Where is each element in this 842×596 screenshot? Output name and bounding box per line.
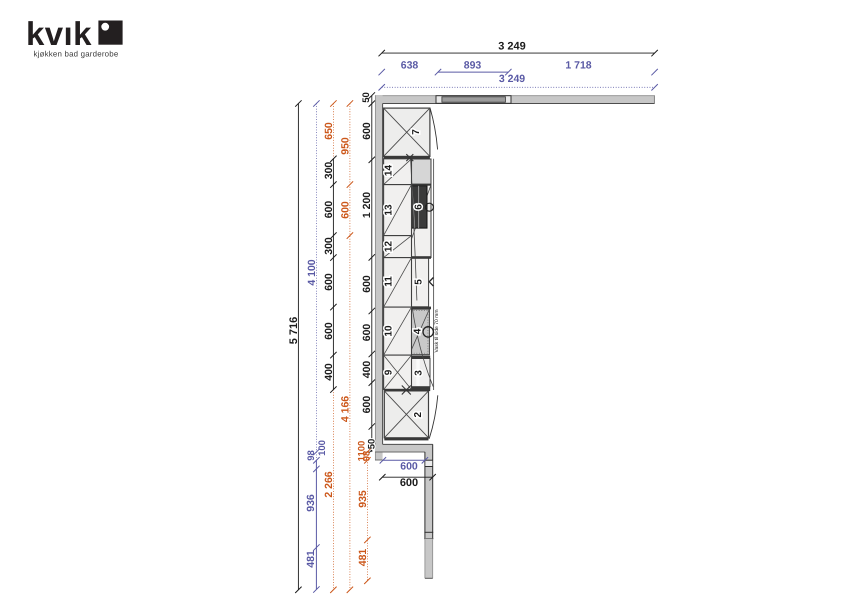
svg-text:600: 600: [400, 460, 418, 472]
svg-text:50: 50: [361, 92, 372, 103]
svg-text:600: 600: [361, 122, 373, 140]
svg-text:600: 600: [323, 322, 335, 340]
svg-text:14: 14: [384, 165, 395, 177]
svg-text:481: 481: [305, 550, 317, 568]
svg-text:600: 600: [361, 396, 373, 414]
svg-text:12: 12: [384, 241, 395, 253]
svg-text:400: 400: [361, 361, 373, 379]
svg-text:7: 7: [411, 129, 422, 135]
svg-text:893: 893: [464, 60, 482, 72]
svg-text:600: 600: [400, 477, 418, 489]
svg-text:kjøkken bad garderobe: kjøkken bad garderobe: [34, 49, 119, 58]
svg-text:600: 600: [323, 273, 335, 291]
svg-text:10: 10: [384, 325, 395, 337]
svg-text:4: 4: [413, 328, 424, 334]
svg-text:100: 100: [317, 440, 328, 456]
svg-text:50: 50: [367, 439, 378, 450]
svg-text:3: 3: [413, 370, 424, 376]
svg-text:2: 2: [413, 411, 424, 417]
svg-text:98: 98: [306, 450, 317, 461]
svg-text:9: 9: [384, 369, 395, 375]
svg-text:300: 300: [323, 237, 335, 255]
svg-text:11: 11: [384, 276, 395, 287]
svg-text:481: 481: [357, 549, 369, 567]
svg-text:2 266: 2 266: [323, 471, 335, 497]
svg-text:5: 5: [413, 279, 424, 285]
svg-text:600: 600: [361, 324, 373, 342]
svg-text:300: 300: [323, 162, 335, 180]
svg-text:935: 935: [357, 490, 369, 508]
svg-text:1 718: 1 718: [565, 60, 591, 72]
svg-text:950: 950: [339, 137, 351, 155]
svg-text:650: 650: [323, 122, 335, 140]
svg-text:600: 600: [339, 201, 351, 219]
svg-text:638: 638: [401, 60, 419, 72]
svg-text:Vask til side 70 mm: Vask til side 70 mm: [434, 310, 440, 353]
svg-text:13: 13: [384, 204, 395, 216]
svg-text:600: 600: [323, 201, 335, 219]
svg-text:4 166: 4 166: [339, 396, 351, 422]
svg-text:3 249: 3 249: [498, 41, 526, 53]
svg-text:936: 936: [305, 494, 317, 512]
svg-text:1 200: 1 200: [361, 192, 373, 218]
svg-text:5 716: 5 716: [288, 317, 300, 345]
svg-text:4 100: 4 100: [306, 259, 318, 285]
svg-text:3 249: 3 249: [499, 73, 525, 85]
svg-text:600: 600: [361, 275, 373, 293]
svg-text:6: 6: [414, 204, 425, 210]
svg-text:kvık: kvık: [26, 15, 92, 52]
svg-text:400: 400: [323, 363, 335, 381]
